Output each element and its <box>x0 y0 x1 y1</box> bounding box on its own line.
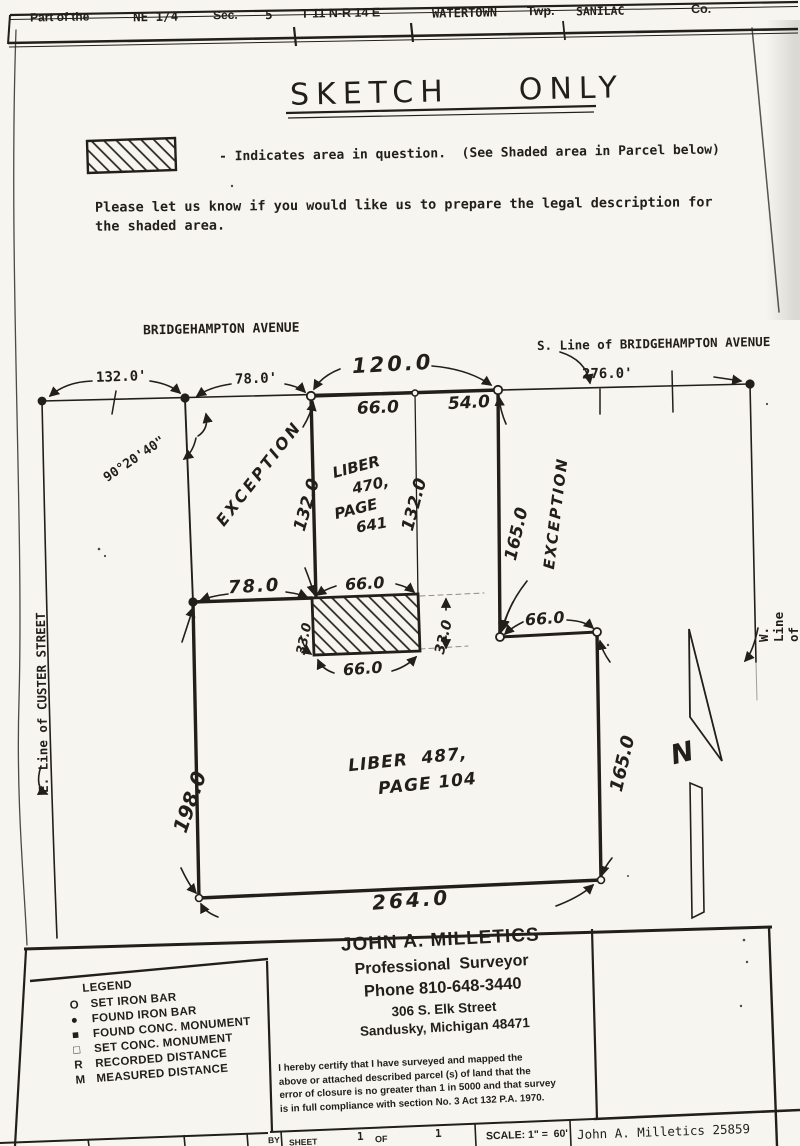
footer-by-label: BY <box>268 1135 280 1145</box>
recorded-distance-symbol: R <box>74 1059 89 1072</box>
dim-66-mid: 66.0 <box>524 608 565 630</box>
hatch-swatch <box>87 138 176 173</box>
dim-54: 54.0 <box>448 392 491 414</box>
liber487-west-line <box>193 602 199 898</box>
found-conc-monument-symbol: ■ <box>72 1029 87 1042</box>
header-sec-value: 5 <box>265 7 273 22</box>
w-line-austin-label: W. Line of AUSTIN STREET <box>756 597 800 642</box>
left-page-edge <box>14 30 27 945</box>
seg-78 <box>193 598 312 602</box>
dim-66-hatch-bottom: 66.0 <box>342 658 383 680</box>
e-line-custer-label: E. Line of CUSTER STREET <box>33 612 51 793</box>
dim-78-mid: 78.0 <box>227 575 280 599</box>
north-arrow-head <box>689 629 722 761</box>
titleblock-left-border <box>15 950 26 1146</box>
area-in-question-hatched <box>312 594 420 655</box>
header-county-name: SANILAC <box>576 4 625 19</box>
dim-78ft: 78.0' <box>235 370 278 387</box>
dim-132ft: 132.0' <box>96 368 147 386</box>
dim-276ft: 276.0' <box>582 366 633 383</box>
right-page-edge <box>752 28 779 312</box>
header-twp-label: Twp. <box>527 4 555 18</box>
set-iron-bar <box>598 877 605 884</box>
set-iron-bar <box>593 628 601 636</box>
header-township-range: T 11 N-R 14 E <box>301 5 380 20</box>
bridgehampton-avenue-label: BRIDGEHAMPTON AVENUE <box>143 321 300 339</box>
found-iron-bar-symbol: ● <box>70 1014 85 1027</box>
dim-66-top: 66.0 <box>357 397 400 418</box>
found-iron-bar <box>180 393 189 402</box>
set-iron-bar <box>307 392 315 400</box>
header-part-of-the: Part of the <box>30 9 90 24</box>
measured-distance-symbol: M <box>75 1074 90 1087</box>
footer-of-num: 1 <box>435 1127 442 1140</box>
footer-sheet-label: SHEET <box>289 1137 318 1146</box>
liber487-east-line <box>597 632 601 880</box>
north-arrow <box>689 629 722 918</box>
dim-66-hatch-top: 66.0 <box>345 573 385 594</box>
header-quarter: NE 1/4 <box>133 9 178 25</box>
set-iron-bar <box>412 390 418 396</box>
surveyor-block: JOHN A. MILLETICS Professional Surveyor … <box>280 921 605 1043</box>
liber470-east-line <box>498 390 500 637</box>
exception-west-line <box>185 399 193 602</box>
found-iron-bar <box>745 379 754 388</box>
north-arrow-tail <box>690 783 704 918</box>
set-iron-bar <box>196 895 203 902</box>
set-iron-bar <box>496 633 504 641</box>
header-co-label: Co. <box>691 2 711 16</box>
titleblock-right-border <box>769 927 777 1146</box>
header-township-name: WATERTOWN <box>432 5 497 20</box>
header-sec-label: Sec. <box>213 8 238 22</box>
set-iron-bar <box>494 386 502 394</box>
set-iron-bar-symbol: O <box>69 999 84 1012</box>
dim-120: 120.0 <box>351 350 434 378</box>
footer-of-label: OF <box>375 1134 388 1144</box>
set-conc-monument-symbol: □ <box>73 1044 88 1057</box>
survey-sketch-page: Part of the NE 1/4 Sec. 5 T 11 N-R 14 E … <box>0 0 800 1146</box>
header-rules <box>8 2 798 47</box>
request-note: Please let us know if you would like us … <box>95 193 713 236</box>
footer-sheet-num: 1 <box>357 1130 364 1143</box>
found-iron-bar <box>188 597 197 606</box>
found-iron-bar <box>38 397 47 406</box>
legend-block: LEGEND O SET IRON BAR ● FOUND IRON BAR ■… <box>68 966 306 1090</box>
seg-66-mid <box>500 632 597 637</box>
